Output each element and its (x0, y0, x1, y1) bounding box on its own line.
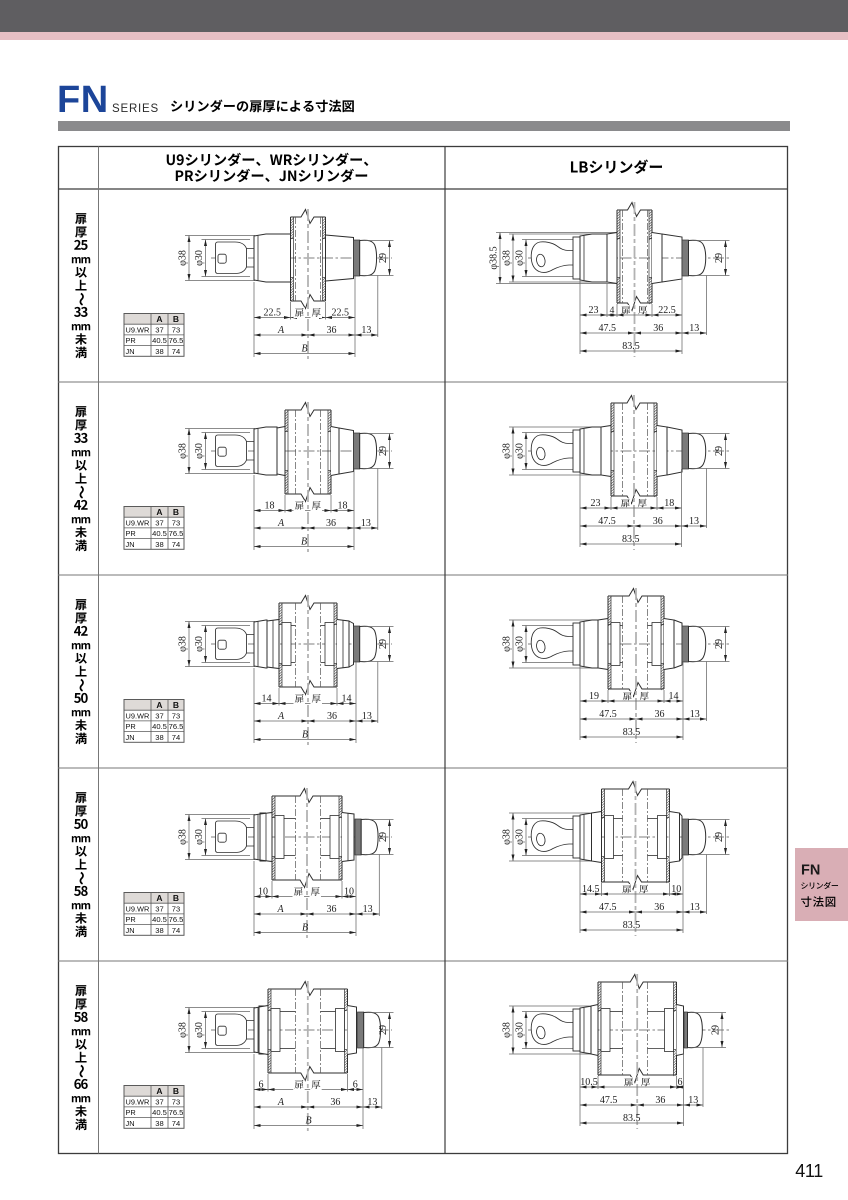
svg-text:φ30: φ30 (515, 1022, 526, 1038)
svg-text:PR: PR (126, 1108, 136, 1117)
svg-text:29: 29 (714, 639, 725, 649)
svg-text:14.5: 14.5 (582, 884, 600, 895)
svg-text:U9.WR: U9.WR (126, 1097, 150, 1106)
svg-text:29: 29 (714, 832, 725, 842)
svg-text:47.5: 47.5 (600, 1095, 618, 1106)
svg-text:74: 74 (172, 926, 180, 935)
svg-text:U9.WR: U9.WR (126, 904, 150, 913)
svg-text:22.5: 22.5 (658, 305, 676, 316)
svg-text:76.5: 76.5 (169, 1108, 184, 1117)
svg-text:φ30: φ30 (515, 829, 526, 845)
svg-text:37: 37 (155, 1097, 163, 1106)
svg-text:φ38: φ38 (178, 829, 189, 845)
svg-text:19: 19 (589, 691, 599, 702)
svg-text:U9.WR: U9.WR (126, 325, 150, 334)
svg-text:A: A (156, 893, 162, 903)
svg-text:76.5: 76.5 (169, 529, 184, 538)
svg-text:φ30: φ30 (515, 443, 526, 459)
svg-text:83.5: 83.5 (622, 341, 640, 352)
svg-text:38: 38 (155, 540, 163, 549)
svg-text:40.5: 40.5 (152, 1108, 167, 1117)
svg-text:B: B (173, 1086, 179, 1096)
svg-text:76.5: 76.5 (169, 336, 184, 345)
svg-text:U9.WR: U9.WR (126, 711, 150, 720)
svg-text:83.5: 83.5 (623, 1113, 641, 1124)
svg-text:73: 73 (172, 1097, 180, 1106)
svg-text:B: B (173, 700, 179, 710)
svg-text:13: 13 (362, 711, 372, 722)
svg-text:37: 37 (155, 904, 163, 913)
svg-text:φ38: φ38 (502, 1022, 513, 1038)
svg-text:47.5: 47.5 (598, 323, 616, 334)
svg-text:18: 18 (338, 500, 348, 511)
svg-text:83.5: 83.5 (623, 727, 641, 738)
svg-text:FN: FN (801, 863, 820, 879)
svg-text:36: 36 (653, 323, 663, 334)
svg-text:40.5: 40.5 (152, 336, 167, 345)
svg-text:38: 38 (155, 733, 163, 742)
svg-text:B: B (173, 314, 179, 324)
svg-text:14: 14 (342, 693, 352, 704)
svg-text:40.5: 40.5 (152, 915, 167, 924)
svg-text:40.5: 40.5 (152, 722, 167, 731)
svg-text:73: 73 (172, 904, 180, 913)
svg-text:B: B (305, 1115, 311, 1126)
svg-text:φ38.5: φ38.5 (489, 246, 500, 269)
svg-text:A: A (156, 314, 162, 324)
svg-text:10: 10 (258, 886, 268, 897)
svg-text:13: 13 (363, 904, 373, 915)
svg-text:74: 74 (172, 1119, 180, 1128)
svg-text:U9.WR: U9.WR (126, 518, 150, 527)
svg-text:74: 74 (172, 733, 180, 742)
svg-text:29: 29 (378, 253, 389, 263)
svg-text:29: 29 (378, 1025, 389, 1035)
svg-text:29: 29 (378, 639, 389, 649)
svg-text:36: 36 (330, 1097, 340, 1108)
svg-text:φ30: φ30 (194, 1022, 205, 1038)
svg-text:PR: PR (126, 722, 136, 731)
svg-text:36: 36 (655, 1095, 665, 1106)
svg-text:13: 13 (690, 709, 700, 720)
svg-text:73: 73 (172, 325, 180, 334)
svg-text:18: 18 (265, 500, 275, 511)
svg-text:10: 10 (671, 884, 681, 895)
svg-text:A: A (277, 711, 285, 722)
svg-text:φ30: φ30 (194, 636, 205, 652)
svg-text:10.5: 10.5 (580, 1077, 598, 1088)
svg-text:4: 4 (610, 306, 615, 316)
svg-text:13: 13 (688, 1095, 698, 1106)
svg-text:φ30: φ30 (515, 250, 526, 266)
svg-text:38: 38 (155, 926, 163, 935)
svg-text:38: 38 (155, 1119, 163, 1128)
svg-text:φ30: φ30 (194, 250, 205, 266)
svg-text:36: 36 (655, 709, 665, 720)
svg-text:36: 36 (327, 325, 337, 336)
svg-text:B: B (173, 893, 179, 903)
svg-text:76.5: 76.5 (169, 915, 184, 924)
svg-text:73: 73 (172, 518, 180, 527)
svg-text:74: 74 (172, 540, 180, 549)
svg-text:36: 36 (327, 711, 337, 722)
svg-text:36: 36 (653, 516, 663, 527)
svg-text:φ38: φ38 (178, 636, 189, 652)
svg-text:22.5: 22.5 (331, 307, 349, 318)
svg-text:A: A (156, 700, 162, 710)
svg-text:JN: JN (126, 347, 135, 356)
svg-text:A: A (276, 904, 284, 915)
svg-text:PR: PR (126, 915, 136, 924)
svg-text:JN: JN (126, 540, 135, 549)
svg-text:B: B (302, 922, 308, 933)
svg-text:47.5: 47.5 (598, 516, 616, 527)
svg-text:29: 29 (714, 446, 725, 456)
svg-text:φ38: φ38 (178, 443, 189, 459)
svg-text:A: A (277, 518, 285, 529)
svg-text:φ38: φ38 (502, 443, 513, 459)
svg-text:13: 13 (689, 323, 699, 334)
svg-text:JN: JN (126, 926, 135, 935)
svg-text:6: 6 (678, 1077, 683, 1088)
svg-text:φ38: φ38 (502, 636, 513, 652)
svg-text:38: 38 (155, 347, 163, 356)
svg-text:36: 36 (326, 518, 336, 529)
svg-text:13: 13 (690, 902, 700, 913)
svg-text:φ30: φ30 (194, 829, 205, 845)
svg-text:φ30: φ30 (194, 443, 205, 459)
svg-text:φ30: φ30 (515, 636, 526, 652)
svg-text:13: 13 (689, 516, 699, 527)
svg-text:14: 14 (669, 691, 679, 702)
svg-text:φ38: φ38 (178, 250, 189, 266)
svg-text:23: 23 (591, 498, 601, 509)
svg-text:A: A (156, 507, 162, 517)
svg-text:A: A (156, 1086, 162, 1096)
svg-text:37: 37 (155, 711, 163, 720)
svg-text:B: B (302, 729, 308, 740)
svg-text:37: 37 (155, 325, 163, 334)
svg-text:36: 36 (654, 902, 664, 913)
svg-text:13: 13 (361, 325, 371, 336)
svg-text:φ38: φ38 (178, 1022, 189, 1038)
svg-text:74: 74 (172, 347, 180, 356)
svg-text:29: 29 (378, 446, 389, 456)
svg-text:A: A (277, 325, 285, 336)
svg-text:6: 6 (259, 1079, 264, 1090)
svg-text:29: 29 (378, 832, 389, 842)
svg-text:83.5: 83.5 (623, 920, 641, 931)
svg-text:A: A (277, 1097, 285, 1108)
svg-text:14: 14 (262, 693, 272, 704)
svg-text:PR: PR (126, 336, 136, 345)
svg-text:10: 10 (344, 886, 354, 897)
svg-text:B: B (173, 507, 179, 517)
svg-text:6: 6 (353, 1079, 358, 1090)
svg-text:22.5: 22.5 (263, 307, 281, 318)
svg-text:13: 13 (367, 1097, 377, 1108)
svg-text:B: B (301, 343, 307, 354)
svg-text:18: 18 (664, 498, 674, 509)
svg-text:47.5: 47.5 (599, 709, 617, 720)
svg-text:47.5: 47.5 (599, 902, 617, 913)
svg-text:29: 29 (711, 1025, 722, 1035)
svg-text:JN: JN (126, 1119, 135, 1128)
svg-text:13: 13 (361, 518, 371, 529)
svg-text:40.5: 40.5 (152, 529, 167, 538)
svg-text:29: 29 (714, 253, 725, 263)
svg-text:23: 23 (589, 305, 599, 316)
svg-text:φ38: φ38 (502, 829, 513, 845)
svg-text:JN: JN (126, 733, 135, 742)
svg-text:B: B (301, 536, 307, 547)
svg-text:73: 73 (172, 711, 180, 720)
svg-text:36: 36 (327, 904, 337, 915)
svg-text:83.5: 83.5 (622, 534, 640, 545)
svg-text:37: 37 (155, 518, 163, 527)
svg-text:76.5: 76.5 (169, 722, 184, 731)
svg-text:PR: PR (126, 529, 136, 538)
svg-text:φ38: φ38 (502, 250, 513, 266)
